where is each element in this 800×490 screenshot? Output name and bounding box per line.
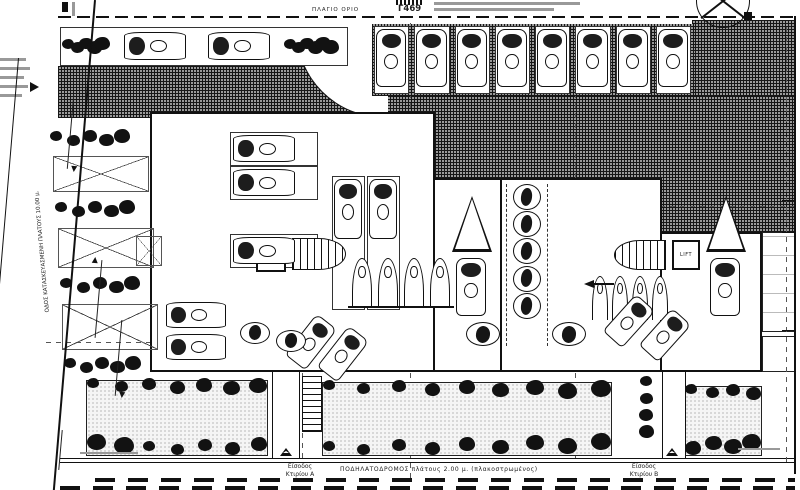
scooter (552, 322, 586, 346)
paving-hatch-right-upper (692, 20, 795, 96)
yard-x (62, 304, 158, 350)
parked-car (416, 29, 446, 87)
sidewalk-line (60, 462, 795, 463)
scooter (513, 266, 541, 292)
block-label: Γ469 (398, 4, 421, 15)
entrance-b-line1: Είσοδος (632, 463, 656, 470)
entrance-b-label: Είσοδος Κτιρίου Β (612, 463, 676, 478)
fine-print-line (0, 85, 28, 88)
tree-icon (558, 438, 577, 454)
garden-c (684, 386, 762, 456)
entrance-a-walkway (272, 372, 300, 458)
tree-icon (706, 387, 719, 398)
boundary-right (794, 16, 796, 474)
entrance-a-steps (302, 376, 322, 432)
tree-icon (171, 444, 184, 455)
fine-print-line (434, 8, 554, 11)
balcony-strip (762, 232, 795, 332)
tree-icon (125, 356, 141, 370)
dim-tick (782, 200, 796, 201)
tree-icon (492, 440, 509, 454)
tree-icon (83, 130, 97, 142)
central-passage (506, 184, 548, 346)
tree-icon (639, 409, 653, 421)
entrance-a-label: Είσοδος Κτιρίου Α (268, 463, 332, 478)
fine-print-line (434, 2, 580, 5)
entrance-b-line2: Κτιρίου Β (630, 471, 659, 478)
direction-arrow-shaft (592, 283, 614, 285)
tree-icon (87, 378, 99, 388)
tree-icon (114, 129, 130, 143)
tree-icon (225, 442, 240, 455)
entrance-b-walkway (662, 372, 686, 458)
tree-icon (170, 381, 185, 394)
traffic-arrow-head-icon (92, 257, 99, 264)
parked-car (233, 237, 295, 264)
fine-print-line (72, 2, 75, 16)
parked-car (124, 32, 186, 60)
bike-path-label: ΠΟΔΗΛΑΤΟΔΡΟΜΟΣ πλάτους 2.00 μ. (πλακοστρ… (340, 466, 538, 474)
tree-icon (223, 381, 240, 395)
tree-icon (80, 362, 93, 373)
scooter (513, 238, 541, 264)
fine-print-line (80, 452, 138, 454)
tree-icon (88, 201, 102, 213)
tree-icon (640, 376, 652, 386)
plot-line-heavy (60, 486, 795, 490)
staircase-a (292, 238, 346, 270)
planting-strip (64, 354, 156, 378)
traffic-arrow-head-icon (119, 392, 126, 399)
parked-car (166, 302, 226, 328)
road-outer-edge (0, 58, 19, 327)
tree-icon (249, 378, 267, 393)
scooter (276, 330, 306, 352)
tree-icon (109, 281, 124, 294)
tree-icon (392, 380, 406, 392)
dim-tick (782, 330, 796, 331)
tree-icon (685, 384, 697, 394)
tree-icon (639, 425, 654, 438)
corner-mark (62, 2, 68, 12)
tree-icon (50, 131, 62, 141)
fine-print-line (0, 67, 30, 70)
planting-strip (60, 272, 156, 300)
planting-strip (55, 196, 151, 224)
tree-icon (94, 37, 110, 51)
parked-car (618, 29, 648, 87)
tree-icon (104, 205, 119, 218)
tree-icon (724, 439, 742, 454)
tree-icon (198, 439, 212, 451)
fine-print-line (738, 448, 780, 450)
staircase-b (614, 240, 666, 270)
dimension-line-right (786, 22, 787, 462)
scooter (513, 184, 541, 210)
tree-icon (357, 444, 370, 455)
parked-car (369, 179, 397, 239)
entrance-a-line1: Είσοδος (288, 463, 312, 470)
scooter (240, 322, 270, 344)
tree-icon (526, 380, 544, 395)
tree-icon (726, 384, 740, 396)
traffic-arrow-head-icon (71, 166, 78, 173)
tree-icon (425, 442, 440, 455)
tree-icon (142, 378, 156, 390)
scooter (466, 322, 500, 346)
parked-car (658, 29, 688, 87)
tree-icon (392, 439, 406, 451)
road-name-label: ΟΔΟΣ ΚΑΤΑΣΚΕΥΑΣΜΕΝΗ ΠΛΑΤΟΥΣ 10.00 μ. (32, 166, 54, 336)
tree-icon (526, 435, 544, 450)
tree-icon (425, 383, 440, 396)
tree-icon (119, 200, 135, 214)
tree-icon (459, 380, 475, 394)
tree-icon (196, 378, 212, 392)
tree-icon (591, 380, 611, 397)
garden-a (86, 380, 268, 456)
entrance-a-line2: Κτιρίου Α (286, 471, 315, 478)
tree-icon (322, 40, 339, 54)
tree-icon (357, 383, 370, 394)
tree-icon (492, 383, 509, 397)
parked-car (577, 29, 607, 87)
tree-icon (323, 380, 335, 390)
note-pointer-icon (30, 82, 39, 92)
fine-print-line (0, 76, 24, 79)
sidewalk-line (60, 458, 795, 459)
plot-line-heavy (95, 478, 795, 482)
parked-car (208, 32, 270, 60)
planting-strip (634, 376, 658, 456)
shaft-x-box (136, 236, 162, 266)
scooter (513, 211, 541, 237)
tree-icon (323, 441, 335, 451)
tree-icon (124, 276, 140, 290)
parked-car (233, 169, 295, 196)
tree-icon (640, 393, 653, 404)
tree-icon (99, 134, 114, 147)
parked-car (497, 29, 527, 87)
parked-car (334, 179, 362, 239)
tree-icon (459, 437, 475, 451)
lift-b: LIFT (672, 240, 700, 270)
paving-hatch-mid (372, 92, 795, 178)
balcony-strip (762, 336, 795, 372)
tree-icon (64, 358, 76, 368)
traffic-arrow (58, 430, 63, 470)
tree-icon (591, 433, 611, 450)
stall-base-line (348, 306, 454, 308)
planting-patch (284, 28, 346, 65)
tree-icon (705, 436, 722, 450)
tree-icon (251, 437, 267, 451)
fine-print-line (0, 58, 26, 61)
parked-car (166, 334, 226, 360)
dim-tick (782, 232, 796, 233)
garden-b (322, 382, 612, 456)
fine-print-line (0, 94, 22, 97)
parked-car (710, 258, 740, 316)
tree-icon (95, 357, 109, 369)
site-plan-drawing: ΠΛΑΓΙΟ ΟΡΙΟ Γ469 ΟΔΟΣ ΚΑΤΑΣΚΕΥΑΣΜΕΝΗ ΠΛΑ… (0, 0, 800, 490)
tree-icon (143, 441, 155, 451)
tree-icon (558, 383, 577, 399)
boundary-corner-mark (744, 12, 752, 20)
planting-strip (50, 126, 146, 152)
parking-row-top-right (372, 24, 694, 96)
boundary-top (58, 16, 796, 18)
scooter (513, 293, 541, 319)
tree-icon (87, 434, 106, 450)
tree-icon (55, 202, 67, 212)
parked-car (376, 29, 406, 87)
parked-car (537, 29, 567, 87)
parked-car (457, 29, 487, 87)
parked-car (233, 135, 295, 162)
tree-icon (685, 441, 701, 455)
parked-car (456, 258, 486, 316)
side-boundary-label: ΠΛΑΓΙΟ ΟΡΙΟ (312, 7, 359, 14)
tree-icon (746, 387, 761, 400)
tree-icon (77, 282, 90, 293)
